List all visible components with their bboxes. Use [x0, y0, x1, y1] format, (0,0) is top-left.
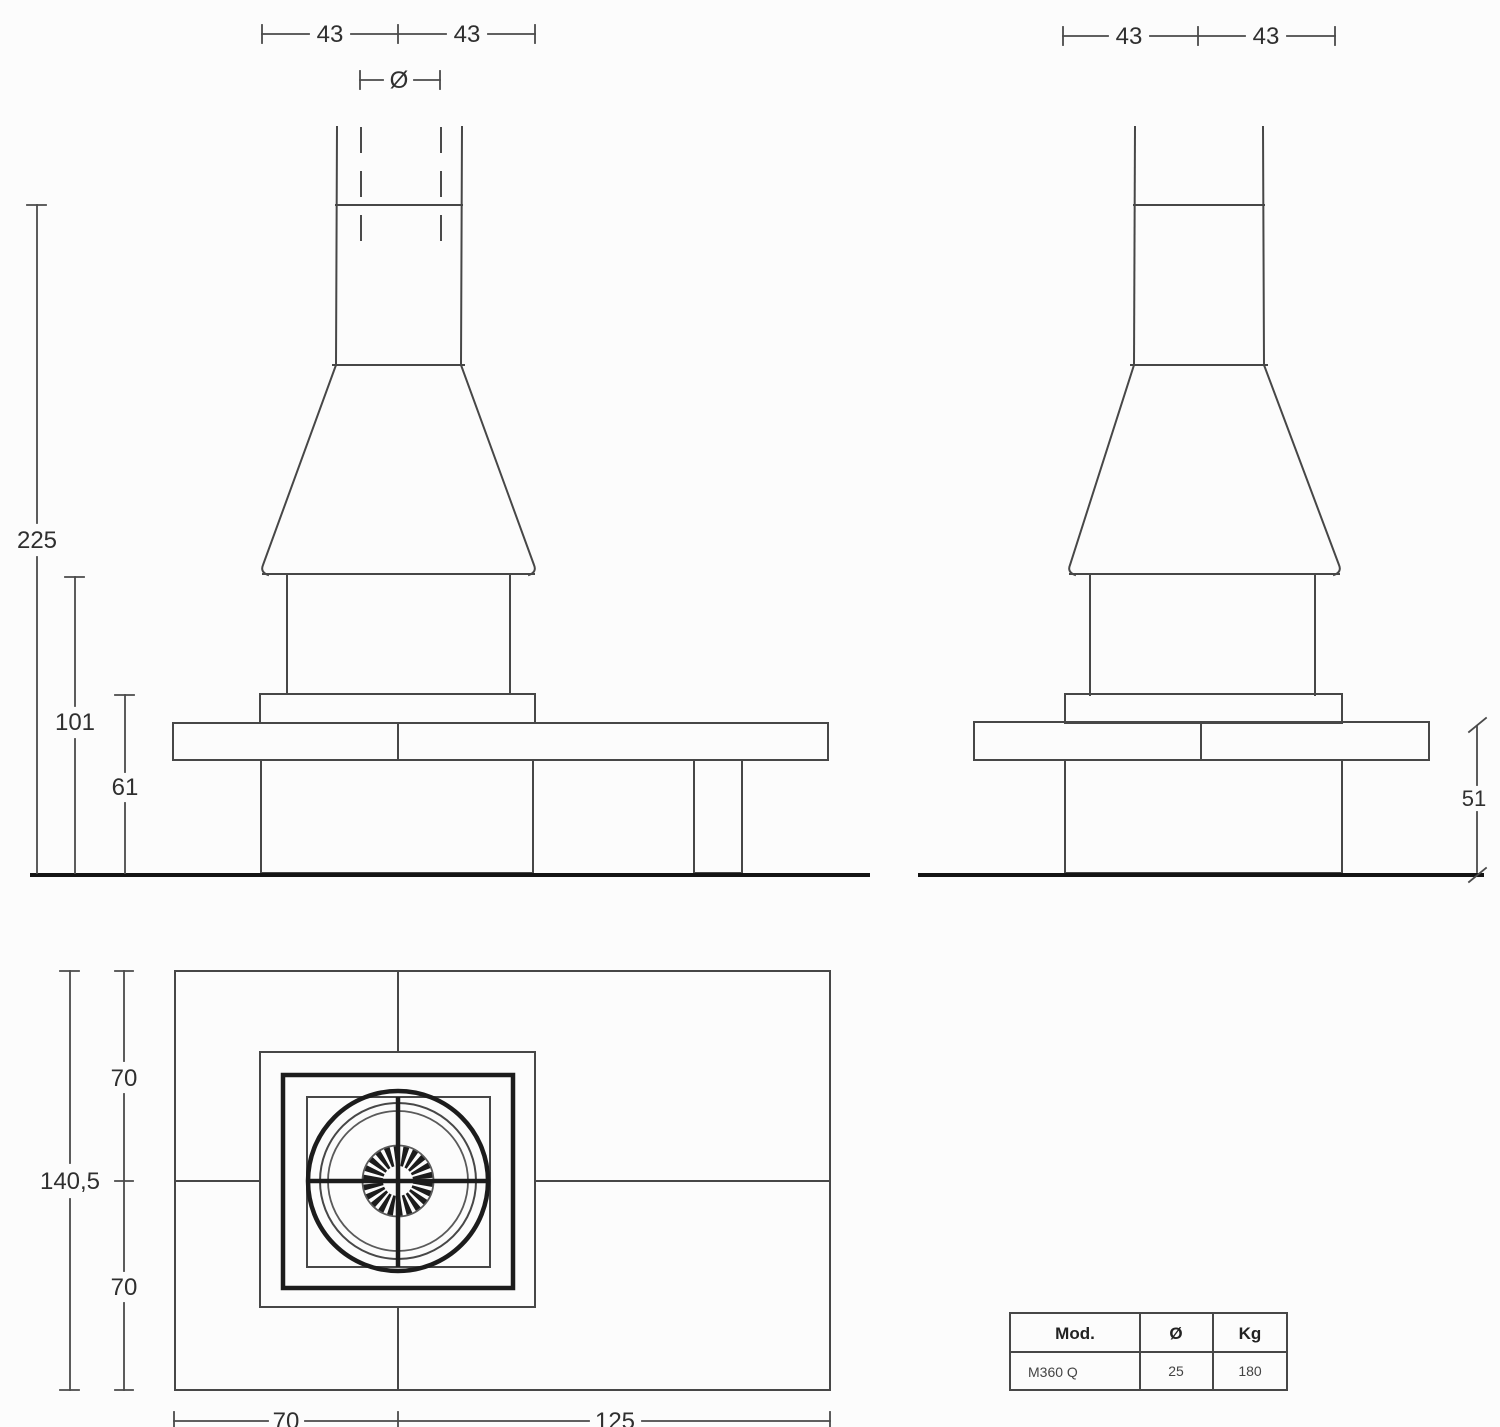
plan-dim-width-left-label: 70 — [273, 1408, 300, 1427]
front-dim-flue-diameter: Ø — [360, 67, 440, 94]
plan-dim-front-depth: 70 — [111, 1181, 138, 1390]
side-hood-cone-left-side — [1069, 365, 1134, 575]
plan-dim-total-depth-label: 140,5 — [40, 1168, 100, 1195]
side-flue-pipe-right-edge — [1263, 127, 1264, 365]
front-dim-mantel-height: 61 — [112, 695, 139, 873]
spec-table-header-weight: Kg — [1239, 1324, 1262, 1343]
spec-table-header-diameter: Ø — [1169, 1324, 1182, 1343]
plan-dim-front-depth-label: 70 — [111, 1274, 138, 1301]
front-hood-cone-left-side — [262, 365, 336, 575]
front-dim-hood-width: 43 43 — [262, 21, 535, 48]
side-flue-pipe-left-edge — [1134, 127, 1135, 365]
front-bench-slab — [173, 723, 828, 760]
plan-dim-bottom-widths: 70 125 — [174, 1408, 830, 1427]
side-view: 43 43 51 — [918, 23, 1486, 882]
spec-table-header-model: Mod. — [1055, 1324, 1095, 1343]
front-mantel-band — [260, 694, 535, 723]
front-dim-total-height: 225 — [17, 205, 57, 873]
front-flue-pipe-right-edge — [461, 127, 462, 365]
front-dim-mantel-height-label: 61 — [112, 774, 139, 801]
spec-table-weight-value: 180 — [1238, 1363, 1262, 1379]
front-view: 43 43 Ø 225 101 — [17, 21, 870, 875]
plan-dim-width-right-label: 125 — [595, 1408, 635, 1427]
spec-table: Mod. Ø Kg M360 Q 25 180 — [1010, 1313, 1287, 1390]
front-dim-flue-symbol-label: Ø — [390, 67, 409, 94]
front-dim-total-height-label: 225 — [17, 527, 57, 554]
side-dim-hood-width: 43 43 — [1063, 23, 1335, 50]
spec-table-model-value: M360 Q — [1028, 1364, 1078, 1380]
spec-table-diameter-value: 25 — [1168, 1363, 1184, 1379]
technical-drawing-page: 43 43 Ø 225 101 — [0, 0, 1500, 1427]
front-base-block — [261, 760, 533, 873]
fireplace-dimension-drawing: 43 43 Ø 225 101 — [0, 0, 1500, 1427]
front-dim-width-left-label: 43 — [317, 21, 344, 48]
plan-view: 140,5 70 70 70 125 — [40, 971, 830, 1427]
front-dim-hood-bottom-height: 101 — [55, 577, 95, 873]
side-dim-bench-height: 51 — [1462, 718, 1486, 882]
side-base-block — [1065, 760, 1342, 873]
front-flue-pipe-left-edge — [336, 127, 337, 365]
plan-dim-back-depth-label: 70 — [111, 1065, 138, 1092]
front-hood-cone-right-side — [461, 365, 535, 575]
side-hood-cone-right-side — [1264, 365, 1340, 575]
plan-dim-back-depth: 70 — [111, 971, 138, 1181]
front-dim-hood-bottom-height-label: 101 — [55, 709, 95, 736]
front-dim-width-right-label: 43 — [454, 21, 481, 48]
plan-dim-total-depth: 140,5 — [40, 971, 100, 1390]
side-dim-width-right-label: 43 — [1253, 23, 1280, 50]
side-dim-bench-height-label: 51 — [1462, 786, 1486, 811]
side-dim-width-left-label: 43 — [1116, 23, 1143, 50]
side-mantel-band — [1065, 694, 1342, 723]
front-bench-leg — [694, 760, 742, 873]
